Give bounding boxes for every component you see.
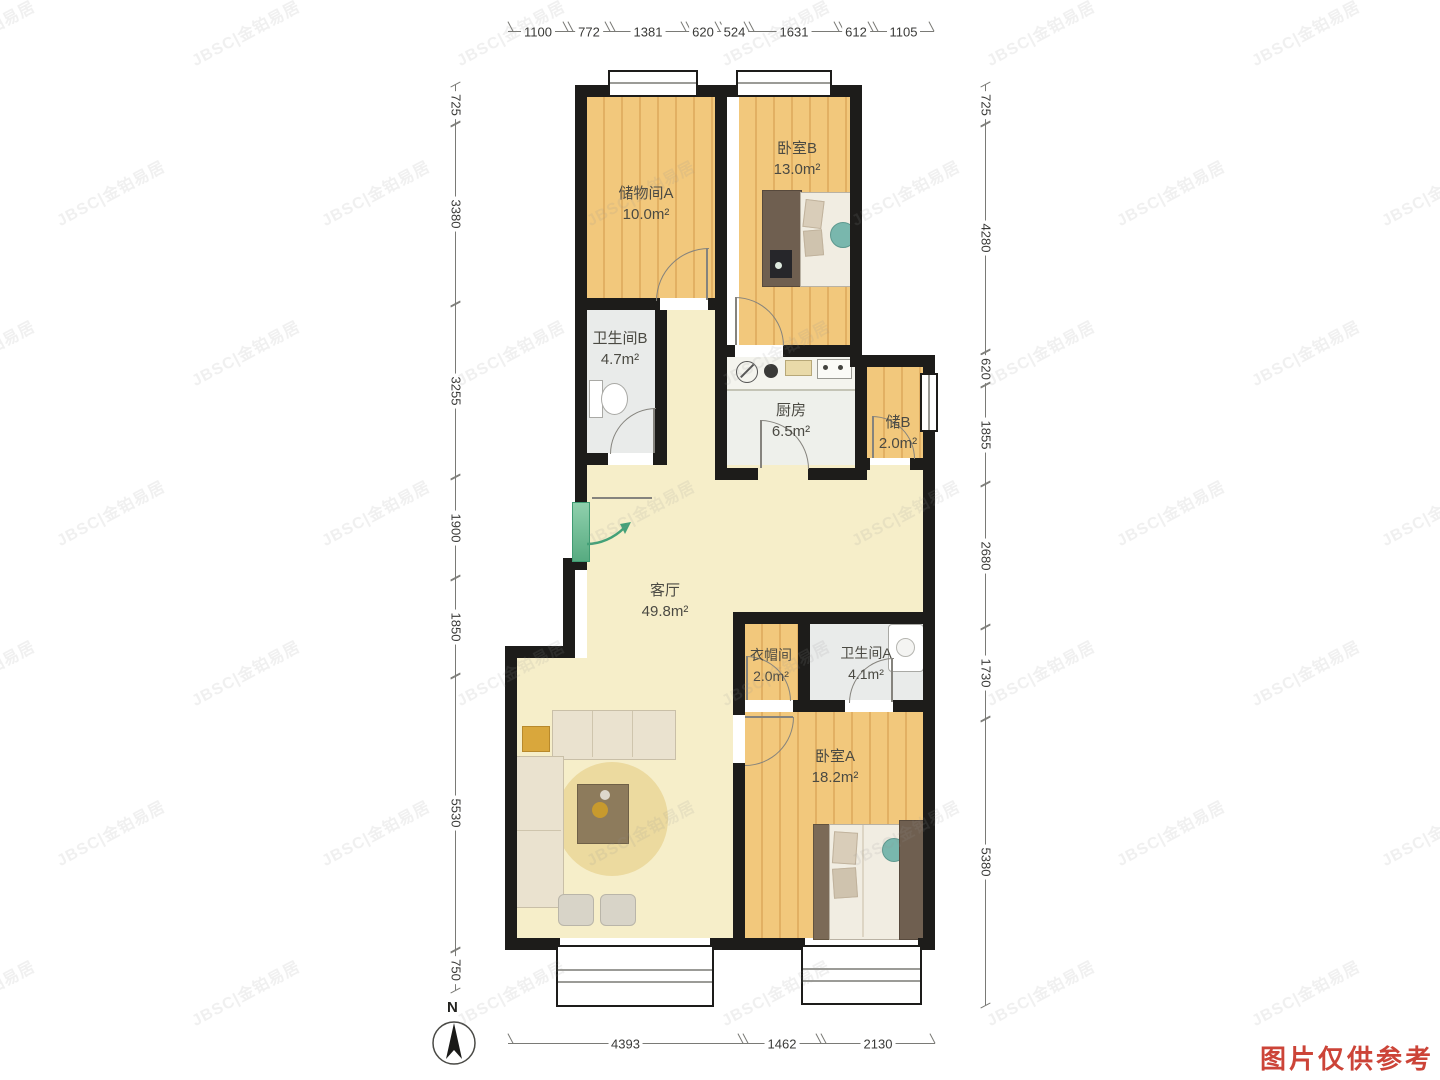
room-area: 2.0m² xyxy=(729,666,813,687)
ottoman-1 xyxy=(558,894,594,926)
room-name: 客厅 xyxy=(605,580,725,601)
compass-icon xyxy=(431,1020,477,1066)
dim-label: 3255 xyxy=(449,373,464,408)
dim-label: 1105 xyxy=(887,25,921,40)
wardrobe-bedroom-a xyxy=(899,820,925,940)
room-area: 6.5m² xyxy=(731,421,851,442)
dim-label: 5380 xyxy=(979,845,994,880)
window-bar xyxy=(803,968,920,970)
room-label-bath-b: 卫生间B 4.7m² xyxy=(570,328,670,370)
dim-top-612: 612 xyxy=(839,31,873,32)
wall xyxy=(575,85,587,465)
dim-right-620: 620 xyxy=(985,352,986,385)
room-name: 卫生间B xyxy=(570,328,670,349)
dim-label: 620 xyxy=(979,355,994,383)
pillow-bedroom-a-1 xyxy=(832,831,858,865)
sofa-top-living xyxy=(552,710,676,760)
floor-corridor xyxy=(667,310,715,480)
dim-label: 2680 xyxy=(979,538,994,573)
kitchen-pot-icon xyxy=(764,364,778,378)
dim-top-1100: 1100 xyxy=(508,31,568,32)
dim-label: 1100 xyxy=(521,25,555,40)
blanket-line-bedroom-a xyxy=(862,825,864,937)
north-label: N xyxy=(447,999,458,1016)
room-area: 2.0m² xyxy=(856,433,940,454)
dim-label: 1631 xyxy=(777,25,812,40)
wall xyxy=(708,298,727,310)
window-bar xyxy=(558,969,712,971)
ottoman-2 xyxy=(600,894,636,926)
wall xyxy=(563,558,575,658)
dim-bottom-2130: 2130 xyxy=(821,1043,935,1044)
dim-label: 524 xyxy=(721,25,749,40)
dim-label: 1850 xyxy=(449,610,464,645)
dim-left-750: 750 xyxy=(455,950,456,990)
wall xyxy=(910,458,935,470)
wall xyxy=(850,85,862,357)
dim-label: 5530 xyxy=(449,796,464,831)
kitchen-burner-icon xyxy=(736,361,758,383)
dim-left-1900: 1900 xyxy=(455,477,456,578)
window-bar xyxy=(803,980,920,982)
door-leaf-bath-b xyxy=(653,408,655,453)
wall xyxy=(733,612,935,624)
dim-label: 1381 xyxy=(631,25,666,40)
kitchen-sink-drain-1 xyxy=(823,365,828,370)
dim-label: 4280 xyxy=(979,221,994,256)
pillow-bedroom-b-1 xyxy=(802,199,824,229)
wall xyxy=(727,345,735,357)
wall xyxy=(710,938,805,950)
door-leaf-storage-a xyxy=(706,248,708,300)
tv-dot xyxy=(775,262,782,269)
room-name: 卧室B xyxy=(737,138,857,159)
door-leaf-bedroom-a xyxy=(745,716,793,718)
disclaimer-text: 图片仅供参考 xyxy=(1260,1039,1434,1076)
room-name: 储物间A xyxy=(586,183,706,204)
kitchen-sink xyxy=(817,359,852,379)
dim-label: 612 xyxy=(842,25,870,40)
wall xyxy=(733,763,745,950)
floor-plan: 储物间A 10.0m² 卧室B 13.0m² 卫生间B 4.7m² 厨房 6.5… xyxy=(0,0,1440,1080)
entry-arrow-icon xyxy=(584,512,638,556)
wall xyxy=(855,458,870,470)
dim-top-620: 620 xyxy=(686,31,720,32)
room-area: 10.0m² xyxy=(586,204,706,225)
table-decor-gold xyxy=(592,802,608,818)
room-label-cloakroom: 衣帽间 2.0m² xyxy=(729,645,813,687)
bay-window-bedroom-a xyxy=(801,945,922,1005)
sofa-top-cushion-line-1 xyxy=(592,711,593,757)
dim-label: 2130 xyxy=(861,1037,896,1052)
room-area: 18.2m² xyxy=(775,767,895,788)
dim-left-3380: 3380 xyxy=(455,124,456,304)
dim-right-725: 725 xyxy=(985,85,986,124)
dim-left-725: 725 xyxy=(455,85,456,124)
window-bar xyxy=(610,82,696,84)
wall xyxy=(923,355,935,373)
room-name: 卧室A xyxy=(775,746,895,767)
dim-right-2680: 2680 xyxy=(985,484,986,627)
sofa-left-cushion-line xyxy=(515,830,561,831)
wall xyxy=(715,310,727,480)
wall xyxy=(575,465,587,503)
dim-top-1381: 1381 xyxy=(610,31,686,32)
wall xyxy=(653,453,667,465)
window-bar xyxy=(738,82,830,84)
dim-right-4280: 4280 xyxy=(985,124,986,352)
window-bedroom-b xyxy=(736,70,832,97)
dim-label: 1730 xyxy=(979,656,994,691)
wall xyxy=(575,453,608,465)
sofa-left-living xyxy=(514,756,564,908)
toilet-bowl-bath-b xyxy=(601,383,628,415)
sofa-top-cushion-line-2 xyxy=(632,711,633,757)
room-name: 衣帽间 xyxy=(729,645,813,666)
pillow-bedroom-b-2 xyxy=(803,229,824,257)
wall xyxy=(733,700,745,712)
dim-left-3255: 3255 xyxy=(455,304,456,477)
room-name: 储B xyxy=(856,412,940,433)
dim-label: 1900 xyxy=(449,510,464,545)
room-name: 卫生间A xyxy=(806,643,926,664)
room-label-bath-a: 卫生间A 4.1m² xyxy=(806,643,926,685)
dim-top-524: 524 xyxy=(720,31,749,32)
wall xyxy=(505,938,560,950)
dim-label: 1855 xyxy=(979,417,994,452)
dim-right-1855: 1855 xyxy=(985,385,986,484)
dim-right-1730: 1730 xyxy=(985,627,986,719)
dim-left-5530: 5530 xyxy=(455,676,456,950)
dim-top-772: 772 xyxy=(568,31,610,32)
room-area: 13.0m² xyxy=(737,159,857,180)
room-label-storage-b: 储B 2.0m² xyxy=(856,412,940,454)
dim-label: 725 xyxy=(979,91,994,119)
dim-label: 4393 xyxy=(608,1037,643,1052)
dim-bottom-4393: 4393 xyxy=(508,1043,743,1044)
door-leaf-bedroom-b xyxy=(735,297,737,345)
bay-window-living xyxy=(556,945,714,1007)
wall xyxy=(575,298,660,310)
dim-right-5380: 5380 xyxy=(985,719,986,1005)
table-decor-plate xyxy=(600,790,610,800)
wall xyxy=(923,428,935,950)
room-name: 厨房 xyxy=(731,400,851,421)
dim-label: 725 xyxy=(449,91,464,119)
room-label-kitchen: 厨房 6.5m² xyxy=(731,400,851,442)
wall xyxy=(715,85,727,310)
room-label-storage-a: 储物间A 10.0m² xyxy=(586,183,706,225)
dim-label: 3380 xyxy=(449,197,464,232)
window-storage-a xyxy=(608,70,698,97)
room-label-bedroom-b: 卧室B 13.0m² xyxy=(737,138,857,180)
kitchen-sink-drain-2 xyxy=(838,365,843,370)
wall xyxy=(505,646,517,950)
room-area: 4.7m² xyxy=(570,349,670,370)
pillow-bedroom-a-2 xyxy=(832,867,858,899)
dim-left-1850: 1850 xyxy=(455,578,456,676)
room-area: 4.1m² xyxy=(806,664,926,685)
dim-bottom-1462: 1462 xyxy=(743,1043,821,1044)
room-label-bedroom-a: 卧室A 18.2m² xyxy=(775,746,895,788)
room-label-living: 客厅 49.8m² xyxy=(605,580,725,622)
side-table-living xyxy=(522,726,550,752)
dim-label: 750 xyxy=(449,956,464,984)
dim-label: 1462 xyxy=(765,1037,800,1052)
dim-top-1105: 1105 xyxy=(873,31,934,32)
entry-swing-line xyxy=(592,497,652,499)
dim-label: 772 xyxy=(575,25,603,40)
dim-label: 620 xyxy=(689,25,717,40)
wall xyxy=(893,700,935,712)
wall xyxy=(793,700,845,712)
window-bar xyxy=(558,981,712,983)
kitchen-appliance xyxy=(785,360,812,376)
wall xyxy=(715,468,758,480)
dim-top-1631: 1631 xyxy=(749,31,839,32)
room-area: 49.8m² xyxy=(605,601,725,622)
